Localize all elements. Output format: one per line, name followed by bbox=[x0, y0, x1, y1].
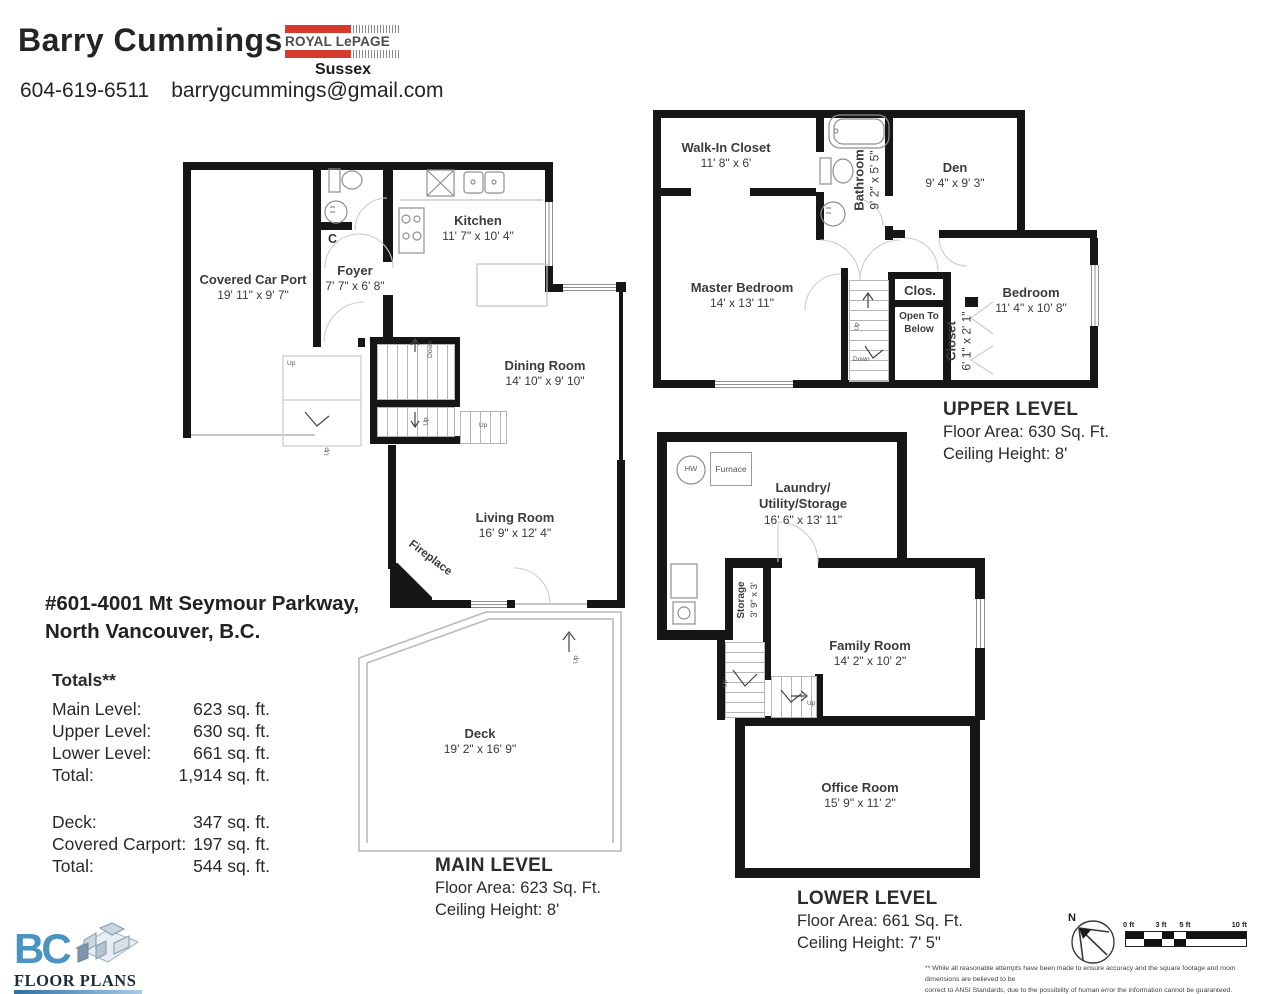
level-ceiling: Ceiling Height: 7' 5" bbox=[797, 932, 963, 954]
scale-segment bbox=[1162, 932, 1174, 939]
entry-up-label: Up bbox=[324, 447, 331, 455]
room-dims: 16' 9" x 12' 4" bbox=[476, 526, 555, 541]
wall bbox=[841, 268, 848, 380]
room-name: Dining Room bbox=[505, 358, 586, 374]
wall bbox=[616, 282, 626, 292]
floorplan-sheet: Barry Cummings ROYAL LePAGE Sussex 604-6… bbox=[0, 0, 1280, 994]
level-area: Floor Area: 623 Sq. Ft. bbox=[435, 877, 601, 899]
thin-line bbox=[191, 434, 315, 436]
window bbox=[563, 284, 616, 291]
room-label-dining: Dining Room 14' 10" x 9' 10" bbox=[505, 358, 586, 389]
scale-labels: 0 ft 3 ft 5 ft 10 ft bbox=[1125, 920, 1247, 930]
disclaimer-line: correct to ANSI Standards, due to the po… bbox=[925, 986, 1247, 994]
totals-row: Covered Carport:197 sq. ft. bbox=[52, 833, 270, 855]
wall bbox=[388, 445, 396, 569]
wall bbox=[970, 716, 980, 878]
wall bbox=[587, 600, 625, 608]
room-label-family: Family Room 14' 2" x 10' 2" bbox=[829, 638, 911, 669]
window bbox=[715, 381, 793, 388]
room-name: Open To bbox=[899, 311, 939, 324]
room-dims: 14' x 13' 11" bbox=[691, 296, 794, 311]
wall bbox=[816, 110, 824, 152]
closet-c-label: C bbox=[328, 232, 337, 246]
stairs-up-label: Up bbox=[423, 417, 430, 425]
level-ceiling: Ceiling Height: 8' bbox=[435, 899, 601, 921]
wall bbox=[545, 284, 563, 292]
wall bbox=[370, 436, 460, 444]
wall bbox=[383, 162, 393, 262]
room-dims: 15' 9" x 11' 2" bbox=[821, 796, 898, 811]
room-label-foyer: Foyer 7' 7" x 6' 8" bbox=[325, 263, 384, 294]
stairs-treads bbox=[377, 344, 455, 400]
isometric-floorplan-art bbox=[66, 916, 142, 970]
agent-phone: 604-619-6511 bbox=[20, 79, 149, 102]
totals-block: Totals** Main Level:623 sq. ft. Upper Le… bbox=[52, 670, 270, 877]
door-pivot bbox=[358, 338, 365, 347]
room-name: Kitchen bbox=[442, 213, 514, 229]
logo-stripes bbox=[353, 25, 401, 33]
room-dims: 11' 4" x 10' 8" bbox=[995, 301, 1067, 316]
room-label-closet: Closet 6' 1" x 2' 1" bbox=[943, 311, 974, 370]
level-title: LOWER LEVEL bbox=[797, 888, 963, 910]
logo-bar-bottom bbox=[285, 50, 401, 58]
wall bbox=[1090, 326, 1098, 388]
wall bbox=[545, 162, 553, 202]
room-name: Foyer bbox=[325, 263, 384, 279]
wall bbox=[893, 230, 905, 238]
room-label-walkin: Walk-In Closet 11' 8" x 6' bbox=[681, 140, 770, 171]
stairs-treads bbox=[849, 280, 889, 382]
compass-icon: N bbox=[1062, 908, 1120, 966]
logo-red-bar bbox=[285, 25, 351, 33]
agent-name: Barry Cummings bbox=[18, 22, 283, 59]
wall bbox=[897, 432, 907, 564]
scale-bar: 0 ft 3 ft 5 ft 10 ft bbox=[1125, 920, 1247, 947]
wall bbox=[370, 400, 460, 407]
window bbox=[471, 601, 507, 608]
room-name: Living Room bbox=[476, 510, 555, 526]
wall bbox=[888, 272, 895, 380]
room-dims: 11' 8" x 6' bbox=[681, 156, 770, 171]
room-name: Utility/Storage bbox=[759, 496, 847, 512]
wall bbox=[975, 568, 985, 599]
door-arcs bbox=[778, 522, 818, 562]
room-name: Bathroom bbox=[851, 149, 867, 210]
room-dims: 19' 2" x 16' 9" bbox=[444, 742, 516, 757]
level-area: Floor Area: 661 Sq. Ft. bbox=[797, 910, 963, 932]
room-dims: 9' 4" x 9' 3" bbox=[925, 176, 984, 191]
scale-segment bbox=[1174, 939, 1186, 946]
wall bbox=[653, 380, 715, 388]
room-label-den: Den 9' 4" x 9' 3" bbox=[925, 160, 984, 191]
stairs-down-label: Down bbox=[853, 356, 870, 363]
scale-label: 3 ft bbox=[1155, 920, 1166, 929]
totals-row: Deck:347 sq. ft. bbox=[52, 811, 270, 833]
wall bbox=[763, 568, 771, 640]
stairs-up-label: Up bbox=[722, 679, 729, 687]
wall bbox=[383, 295, 393, 340]
scale-segment bbox=[1186, 932, 1246, 939]
wall bbox=[653, 110, 1025, 118]
brand-wordmark: ROYAL LePAGE bbox=[285, 34, 401, 49]
room-name: Deck bbox=[444, 726, 516, 742]
logo-bar-top bbox=[285, 25, 401, 33]
lower-level-caption: LOWER LEVEL Floor Area: 661 Sq. Ft. Ceil… bbox=[797, 888, 963, 955]
row-label: Covered Carport: bbox=[52, 833, 186, 855]
row-label: Upper Level: bbox=[52, 720, 151, 742]
wall bbox=[885, 226, 893, 240]
totals-row: Upper Level:630 sq. ft. bbox=[52, 720, 270, 742]
wall bbox=[657, 432, 907, 442]
room-name: Covered Car Port bbox=[200, 272, 307, 288]
room-dims: 14' 10" x 9' 10" bbox=[505, 374, 586, 389]
room-dims: 11' 7" x 10' 4" bbox=[442, 229, 514, 244]
utility-fixtures bbox=[671, 456, 705, 624]
scale-segment bbox=[1126, 932, 1144, 939]
room-dims: 9' 2" x 5' 5" bbox=[868, 149, 883, 210]
row-label: Deck: bbox=[52, 811, 97, 833]
room-name: Below bbox=[899, 324, 939, 337]
row-label: Main Level: bbox=[52, 698, 142, 720]
spacer bbox=[52, 786, 270, 811]
room-dims: 6' 1" x 2' 1" bbox=[960, 311, 975, 370]
stairs-down-label: Down bbox=[427, 341, 434, 358]
room-label-bathroom: Bathroom 9' 2" x 5' 5" bbox=[851, 149, 882, 210]
stairs-up-label: Up bbox=[854, 322, 861, 330]
wall bbox=[507, 600, 515, 608]
totals-title: Totals** bbox=[52, 670, 270, 691]
room-label-storage: Storage 3' 9" x 3' bbox=[736, 581, 760, 618]
room-label-laundry: Laundry/ Utility/Storage 16' 6" x 13' 11… bbox=[759, 480, 847, 528]
wall bbox=[657, 432, 667, 640]
row-value: 197 sq. ft. bbox=[193, 833, 270, 855]
room-label-open-to-below: Open To Below bbox=[899, 311, 939, 336]
royal-lepage-logo: ROYAL LePAGE Sussex bbox=[285, 25, 401, 79]
room-label-clos: Clos. bbox=[904, 283, 936, 299]
room-dims: 3' 9" x 3' bbox=[748, 581, 760, 618]
level-title: MAIN LEVEL bbox=[435, 855, 601, 877]
stairs-treads bbox=[725, 642, 765, 718]
wall bbox=[793, 380, 1098, 388]
window bbox=[1091, 265, 1099, 326]
wall bbox=[320, 222, 352, 230]
entry-up-label: Up bbox=[287, 360, 295, 367]
row-label: Total: bbox=[52, 764, 94, 786]
stairs-treads bbox=[771, 676, 817, 718]
wall bbox=[313, 162, 321, 347]
row-value: 347 sq. ft. bbox=[193, 811, 270, 833]
wall bbox=[725, 558, 733, 640]
wall bbox=[750, 188, 816, 196]
wall bbox=[619, 292, 623, 464]
wall bbox=[1090, 238, 1098, 265]
room-label-living: Living Room 16' 9" x 12' 4" bbox=[476, 510, 555, 541]
room-dims: 16' 6" x 13' 11" bbox=[759, 513, 847, 528]
row-value: 623 sq. ft. bbox=[193, 698, 270, 720]
wall bbox=[818, 558, 985, 568]
room-name: Laundry/ bbox=[759, 480, 847, 496]
wall bbox=[975, 648, 985, 720]
room-label-carport: Covered Car Port 19' 11" x 9' 7" bbox=[200, 272, 307, 303]
wall bbox=[735, 868, 980, 878]
stairs-treads bbox=[377, 407, 455, 437]
hot-water-label: HW bbox=[681, 464, 701, 473]
room-label-deck: Deck 19' 2" x 16' 9" bbox=[444, 726, 516, 757]
wall bbox=[370, 337, 460, 344]
room-dims: 7' 7" x 6' 8" bbox=[325, 279, 384, 294]
scale-segment bbox=[1144, 939, 1162, 946]
row-value: 661 sq. ft. bbox=[193, 742, 270, 764]
totals-row: Total:1,914 sq. ft. bbox=[52, 764, 270, 786]
wall bbox=[965, 297, 978, 307]
room-name: Closet bbox=[943, 311, 959, 370]
room-name: Office Room bbox=[821, 780, 898, 796]
address-line1: #601-4001 Mt Seymour Parkway, bbox=[45, 590, 359, 618]
room-name: Storage bbox=[736, 581, 749, 618]
level-title: UPPER LEVEL bbox=[943, 399, 1109, 421]
room-label-master: Master Bedroom 14' x 13' 11" bbox=[691, 280, 794, 311]
wall bbox=[617, 460, 625, 608]
patio-door-track bbox=[515, 603, 587, 605]
disclaimer: ** While all reasonable attempts have be… bbox=[925, 964, 1247, 994]
wall bbox=[939, 230, 1097, 238]
scale-label: 10 ft bbox=[1232, 920, 1247, 929]
agent-email: barrygcummings@gmail.com bbox=[171, 79, 443, 102]
floor-plans-wordmark: FLOOR PLANS bbox=[14, 971, 136, 991]
room-label-office: Office Room 15' 9" x 11' 2" bbox=[821, 780, 898, 811]
wall bbox=[725, 558, 782, 568]
wall bbox=[370, 337, 377, 443]
property-address: #601-4001 Mt Seymour Parkway, North Vanc… bbox=[45, 590, 359, 645]
room-dims: 19' 11" x 9' 7" bbox=[200, 288, 307, 303]
wall bbox=[657, 630, 730, 640]
row-value: 1,914 sq. ft. bbox=[179, 764, 270, 786]
scale-label: 0 ft bbox=[1123, 920, 1134, 929]
room-name: Family Room bbox=[829, 638, 911, 654]
wall bbox=[885, 110, 893, 196]
window bbox=[976, 599, 985, 648]
stairs-up-label: Up bbox=[807, 700, 815, 707]
wall bbox=[816, 192, 824, 240]
lower-level-plan: Furnace HW Laundry/ Utility/Storage 16' … bbox=[655, 428, 987, 888]
room-name: Bedroom bbox=[995, 285, 1067, 301]
wall bbox=[1017, 110, 1025, 238]
totals-row: Total:544 sq. ft. bbox=[52, 855, 270, 877]
totals-row: Main Level:623 sq. ft. bbox=[52, 698, 270, 720]
window bbox=[545, 202, 553, 266]
row-value: 544 sq. ft. bbox=[193, 855, 270, 877]
upper-level-plan: Walk-In Closet 11' 8" x 6' Bathroom 9' 2… bbox=[653, 108, 1105, 398]
wall bbox=[183, 162, 191, 438]
room-name: Den bbox=[925, 160, 984, 176]
fireplace-mass bbox=[390, 563, 432, 608]
room-name: Walk-In Closet bbox=[681, 140, 770, 156]
deck-up-label: Up bbox=[573, 655, 580, 663]
wall bbox=[653, 110, 661, 388]
room-name: Master Bedroom bbox=[691, 280, 794, 296]
furnace-box: Furnace bbox=[710, 452, 752, 486]
wall bbox=[735, 716, 745, 878]
row-label: Lower Level: bbox=[52, 742, 151, 764]
bc-floor-plans-logo: BC FLOOR PLANS bbox=[14, 916, 146, 994]
row-value: 630 sq. ft. bbox=[193, 720, 270, 742]
bc-monogram: BC bbox=[14, 928, 69, 970]
wall bbox=[183, 162, 545, 170]
room-label-kitchen: Kitchen 11' 7" x 10' 4" bbox=[442, 213, 514, 244]
address-line2: North Vancouver, B.C. bbox=[45, 618, 359, 646]
room-dims: 14' 2" x 10' 2" bbox=[829, 654, 911, 669]
disclaimer-line: ** While all reasonable attempts have be… bbox=[925, 964, 1247, 986]
logo-underline-bar bbox=[14, 990, 142, 994]
row-label: Total: bbox=[52, 855, 94, 877]
logo-red-bar bbox=[285, 50, 351, 58]
contact-line: 604-619-6511barrygcummings@gmail.com bbox=[20, 79, 465, 103]
logo-stripes bbox=[353, 50, 401, 58]
carport-steps bbox=[283, 356, 361, 446]
scale-bar-segments bbox=[1125, 931, 1247, 947]
room-name: Clos. bbox=[904, 283, 936, 299]
brokerage-office: Sussex bbox=[285, 61, 401, 79]
stairs-up-label: Up bbox=[479, 422, 487, 429]
main-level-caption: MAIN LEVEL Floor Area: 623 Sq. Ft. Ceili… bbox=[435, 855, 601, 922]
room-label-bedroom: Bedroom 11' 4" x 10' 8" bbox=[995, 285, 1067, 316]
fireplace-label: Fireplace bbox=[406, 538, 454, 578]
compass-north-label: N bbox=[1068, 912, 1076, 924]
totals-row: Lower Level:661 sq. ft. bbox=[52, 742, 270, 764]
wall bbox=[661, 188, 691, 196]
scale-label: 5 ft bbox=[1179, 920, 1190, 929]
